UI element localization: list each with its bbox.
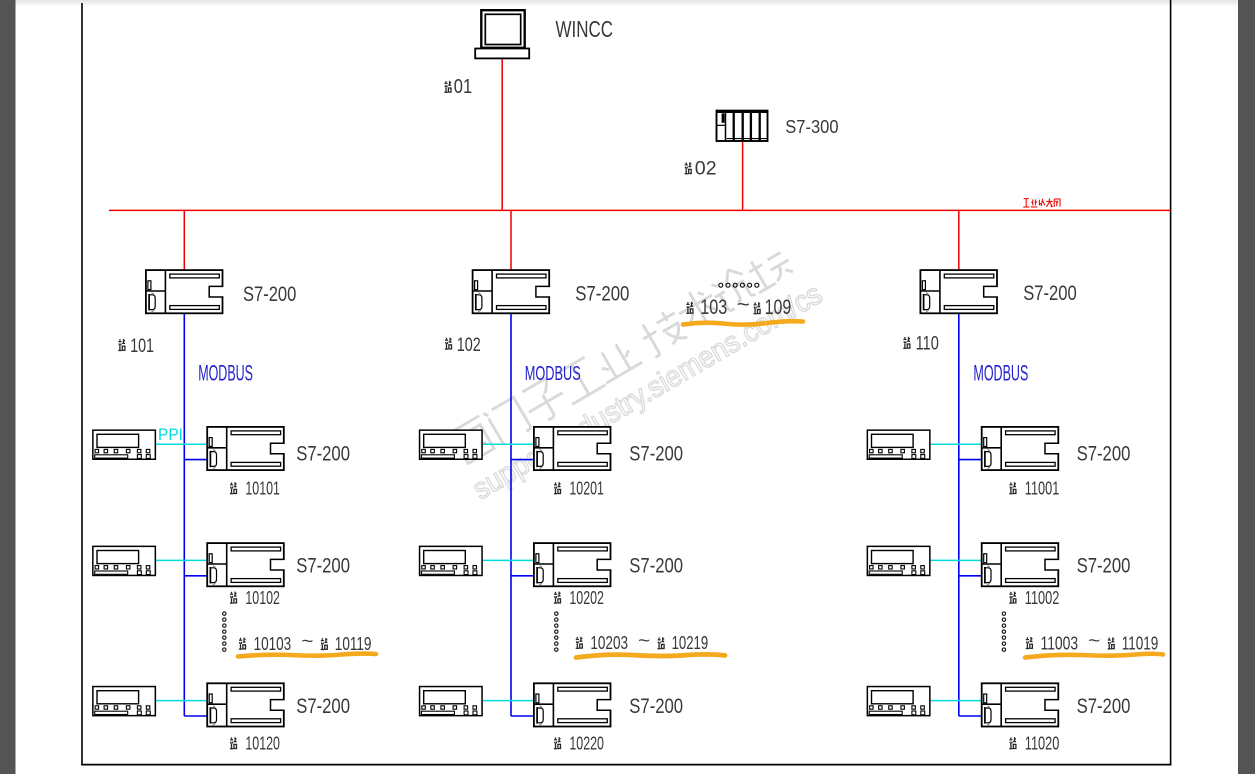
svg-text:02: 02 (695, 159, 717, 180)
svg-text:11002: 11002 (1025, 587, 1060, 608)
svg-text:101: 101 (130, 335, 154, 357)
svg-text:110: 110 (916, 334, 939, 355)
svg-text:109: 109 (765, 296, 792, 319)
svg-text:11019: 11019 (1122, 633, 1159, 654)
svg-text:11020: 11020 (1025, 732, 1060, 753)
svg-text:10119: 10119 (335, 634, 372, 655)
svg-text:MODBUS: MODBUS (973, 361, 1028, 386)
svg-text:10219: 10219 (672, 633, 709, 654)
svg-text:MODBUS: MODBUS (198, 360, 253, 385)
svg-text:102: 102 (457, 334, 481, 356)
svg-text:S7-200: S7-200 (243, 283, 296, 306)
svg-text:10102: 10102 (245, 587, 280, 608)
svg-text:~: ~ (737, 294, 750, 316)
svg-text:11001: 11001 (1025, 477, 1060, 498)
svg-text:S7-200: S7-200 (1077, 443, 1131, 466)
svg-text:~: ~ (1088, 632, 1100, 651)
svg-text:10101: 10101 (245, 477, 280, 498)
svg-text:~: ~ (301, 632, 313, 651)
svg-text:S7-200: S7-200 (629, 695, 683, 718)
svg-text:10103: 10103 (254, 634, 292, 655)
svg-text:S7-200: S7-200 (1023, 282, 1076, 305)
svg-text:10202: 10202 (569, 587, 604, 608)
svg-text:01: 01 (454, 76, 472, 98)
svg-text:S7-200: S7-200 (629, 555, 683, 578)
svg-text:10201: 10201 (569, 477, 604, 498)
svg-text:10120: 10120 (245, 732, 280, 753)
svg-text:S7-300: S7-300 (785, 116, 838, 137)
svg-text:S7-200: S7-200 (296, 443, 350, 466)
svg-text:S7-200: S7-200 (1077, 695, 1131, 718)
svg-text:S7-200: S7-200 (296, 555, 350, 578)
svg-text:S7-200: S7-200 (575, 282, 629, 305)
svg-text:10220: 10220 (569, 732, 604, 753)
svg-text:11003: 11003 (1041, 633, 1079, 654)
svg-text:PPI: PPI (158, 425, 183, 444)
svg-text:103: 103 (700, 296, 727, 319)
svg-text:~: ~ (638, 631, 650, 650)
svg-text:S7-200: S7-200 (1077, 555, 1131, 578)
svg-text:S7-200: S7-200 (629, 443, 683, 466)
svg-text:MODBUS: MODBUS (525, 363, 581, 385)
svg-text:S7-200: S7-200 (296, 695, 350, 718)
svg-text:WINCC: WINCC (556, 16, 614, 42)
svg-text:10203: 10203 (590, 633, 628, 654)
